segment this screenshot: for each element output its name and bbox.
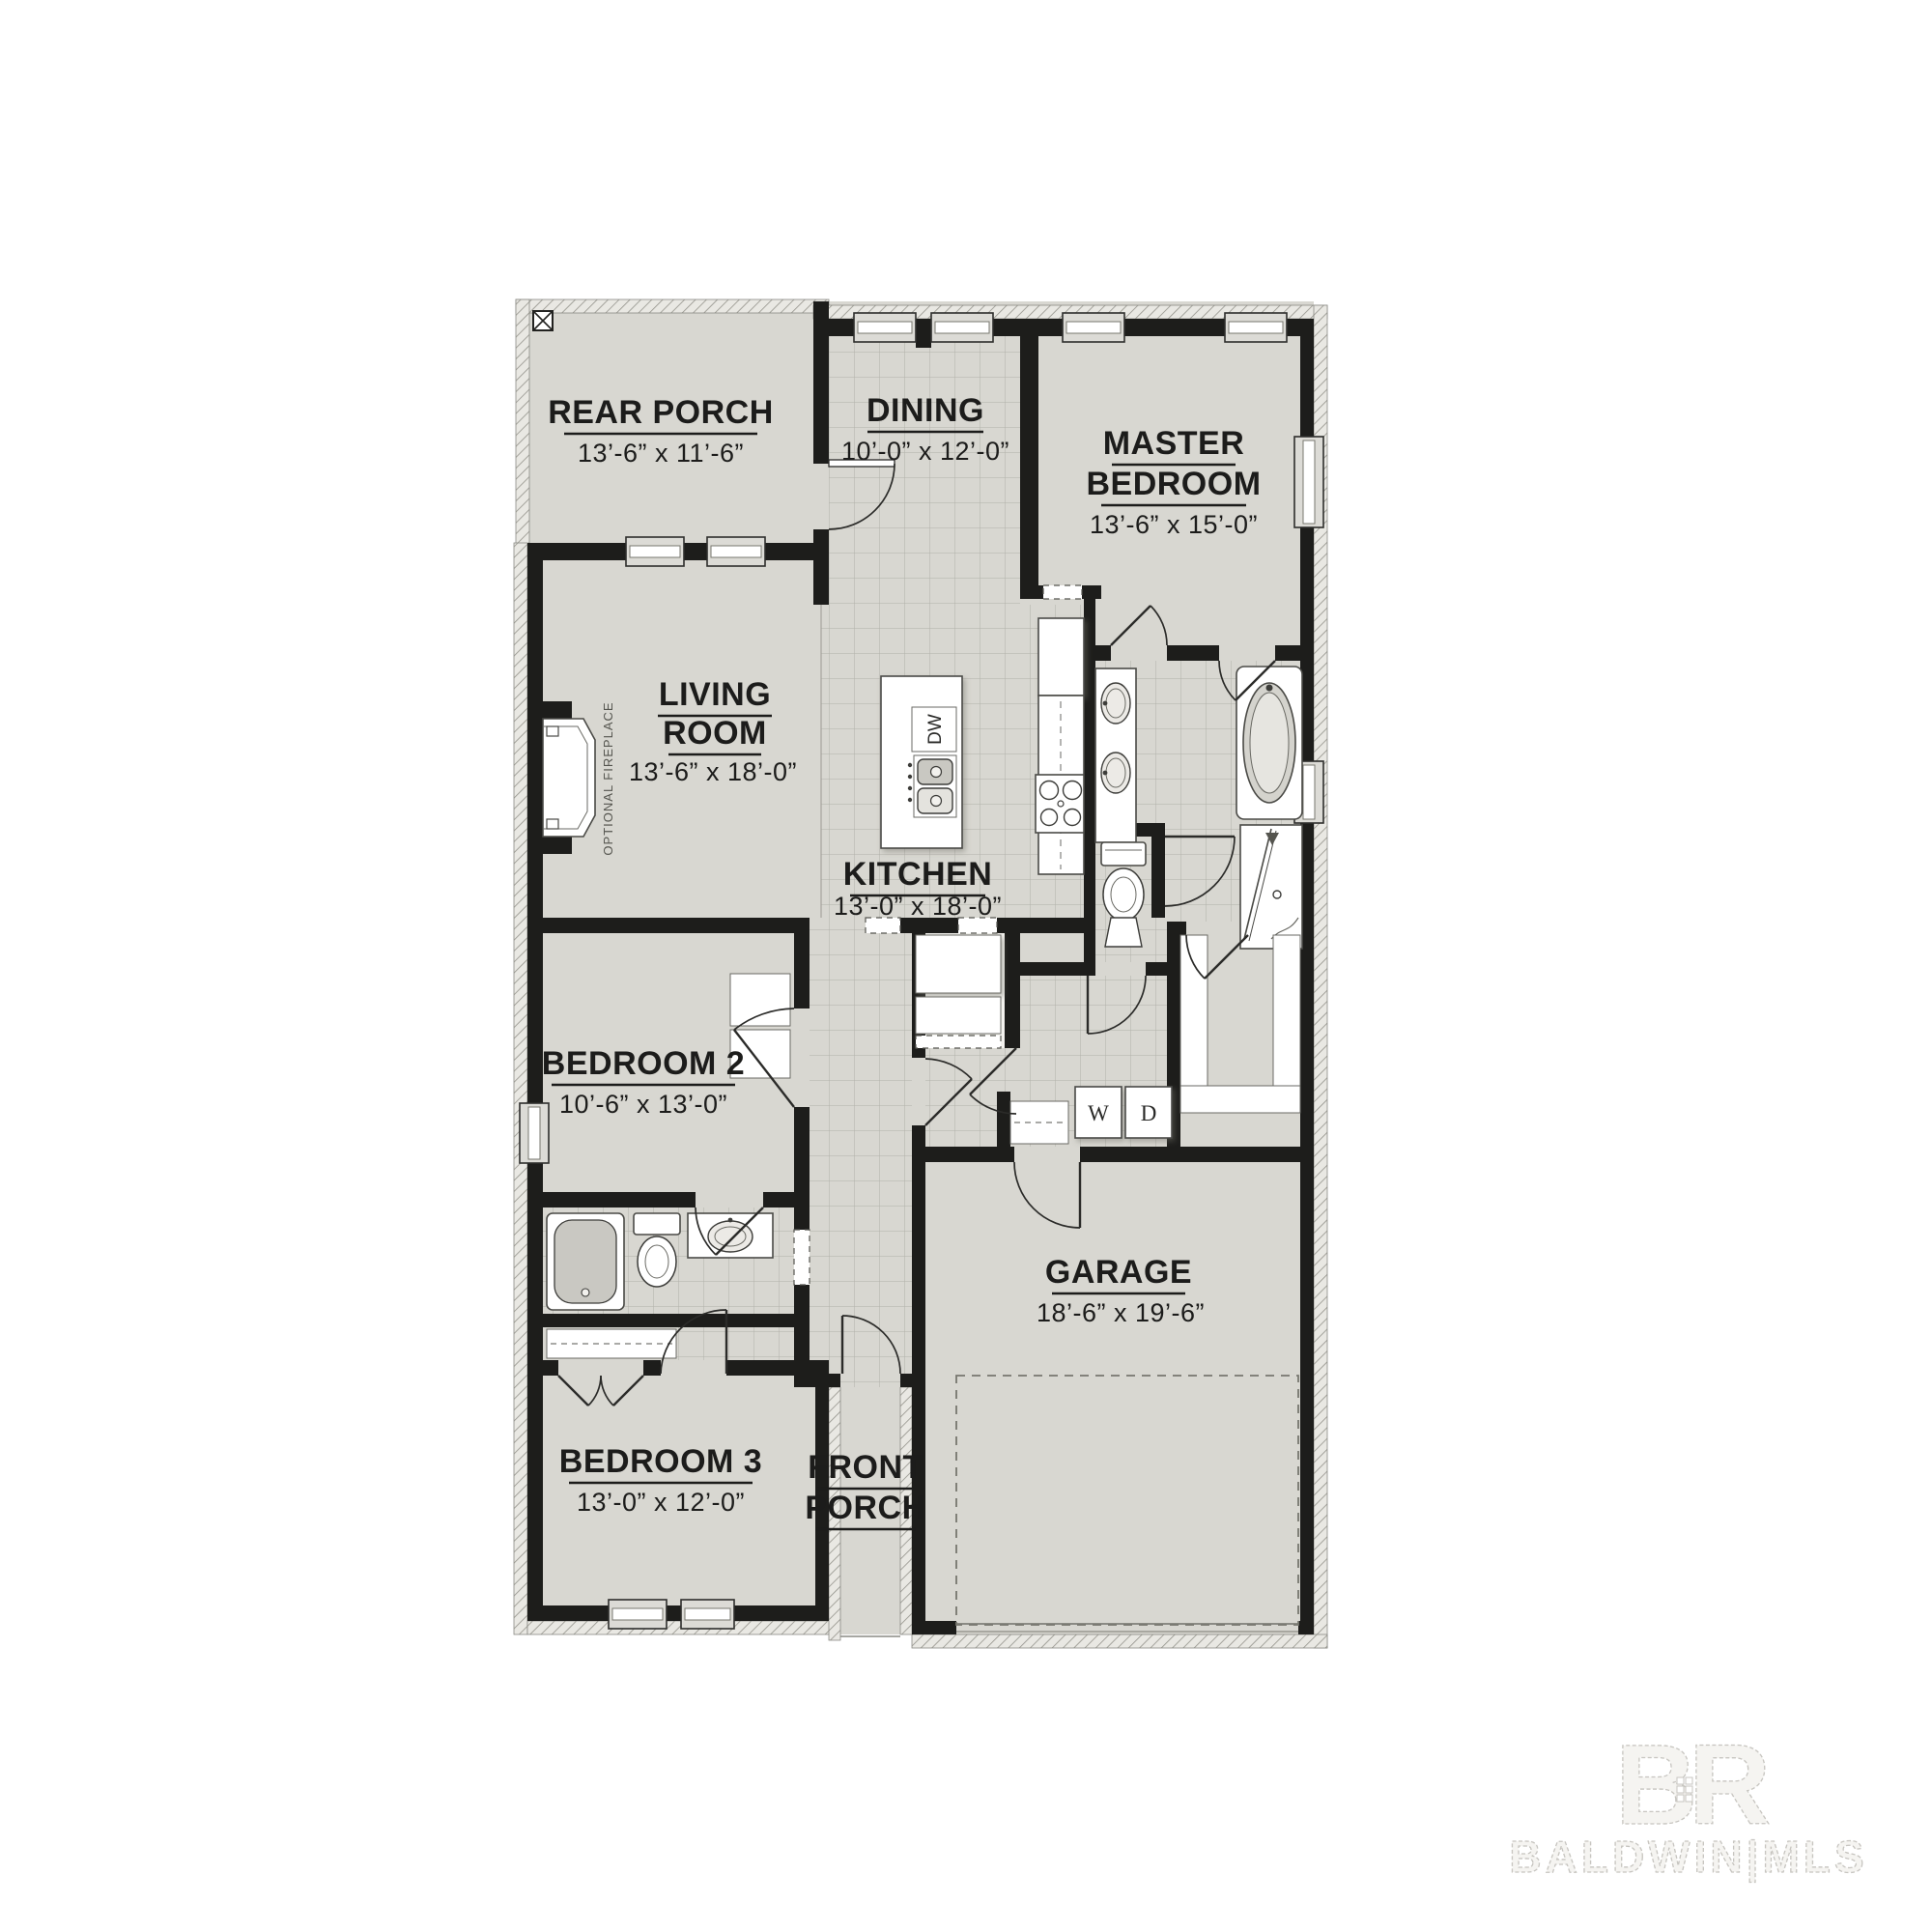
window: [931, 313, 993, 342]
bedroom2-name: BEDROOM 2: [542, 1045, 745, 1082]
cased-opening: [794, 1230, 810, 1285]
window: [707, 537, 765, 566]
watermark-logo-b: B: [1615, 1721, 1697, 1849]
hall-vanity: [688, 1213, 773, 1258]
window: [520, 1103, 549, 1163]
master-dims: 13’-6” x 15’-0”: [1090, 510, 1258, 539]
refrigerator: [1038, 618, 1084, 696]
master-toilet: [1101, 842, 1146, 947]
floor-plan-page: DW: [0, 0, 1932, 1932]
label-kitchen: KITCHEN 13’-0” x 18’-0”: [834, 856, 1002, 921]
kitchen-dims: 13’-0” x 18’-0”: [834, 892, 1002, 921]
master-shower: [1240, 825, 1302, 949]
dishwasher-label: DW: [925, 714, 946, 745]
rear-porch-name: REAR PORCH: [548, 394, 774, 431]
label-front-porch: FRONT PORCH: [805, 1449, 925, 1529]
master-vanity: [1095, 668, 1136, 842]
window: [1063, 313, 1124, 342]
front-porch-name-2: PORCH: [805, 1490, 925, 1526]
watermark: B R BALDWIN|MLS: [1509, 1721, 1867, 1882]
label-master-bedroom: MASTER BEDROOM 13’-6” x 15’-0”: [1086, 425, 1261, 539]
fireplace: OPTIONAL FIREPLACE: [543, 701, 615, 855]
dryer-label: D: [1141, 1101, 1157, 1125]
window: [609, 1600, 667, 1629]
window: [1294, 437, 1323, 527]
dining-name: DINING: [867, 392, 984, 429]
bedroom3-name: BEDROOM 3: [559, 1443, 762, 1480]
bedroom2-dims: 10’-6” x 13’-0”: [559, 1090, 727, 1119]
floor-plan-drawing: DW: [0, 0, 1932, 1932]
cased-opening: [916, 1036, 1001, 1048]
front-porch-name-1: FRONT: [808, 1449, 923, 1486]
washer-label: W: [1088, 1101, 1109, 1125]
bedroom3-closet: [547, 1329, 676, 1358]
living-name-1: LIVING: [659, 676, 771, 713]
master-name-1: MASTER: [1103, 425, 1245, 462]
living-name-2: ROOM: [663, 715, 767, 752]
window: [854, 313, 916, 342]
watermark-logo-r: R: [1689, 1721, 1771, 1849]
pantry-shelves: [916, 935, 1001, 1034]
hall-tub: [547, 1213, 624, 1310]
kitchen-island: DW: [881, 676, 962, 848]
garage-dims: 18’-6” x 19’-6”: [1037, 1298, 1205, 1327]
master-name-2: BEDROOM: [1086, 466, 1261, 502]
window: [1225, 313, 1287, 342]
kitchen-counter: [1036, 618, 1084, 874]
window: [681, 1600, 734, 1629]
post-symbol: [533, 311, 553, 330]
watermark-label: BALDWIN|MLS: [1509, 1832, 1867, 1882]
bedroom3-dims: 13’-0” x 12’-0”: [577, 1488, 745, 1517]
fireplace-note: OPTIONAL FIREPLACE: [601, 701, 615, 855]
living-dims: 13’-6” x 18’-0”: [629, 757, 797, 786]
range: [1036, 775, 1084, 833]
garage-name: GARAGE: [1045, 1254, 1192, 1291]
hall-toilet: [634, 1213, 680, 1287]
kitchen-sink: [908, 755, 956, 817]
cased-opening: [1043, 585, 1082, 599]
rear-porch-dims: 13’-6” x 11’-6”: [578, 439, 744, 468]
window: [626, 537, 684, 566]
kitchen-name: KITCHEN: [843, 856, 993, 893]
dining-dims: 10’-0” x 12’-0”: [841, 437, 1009, 466]
